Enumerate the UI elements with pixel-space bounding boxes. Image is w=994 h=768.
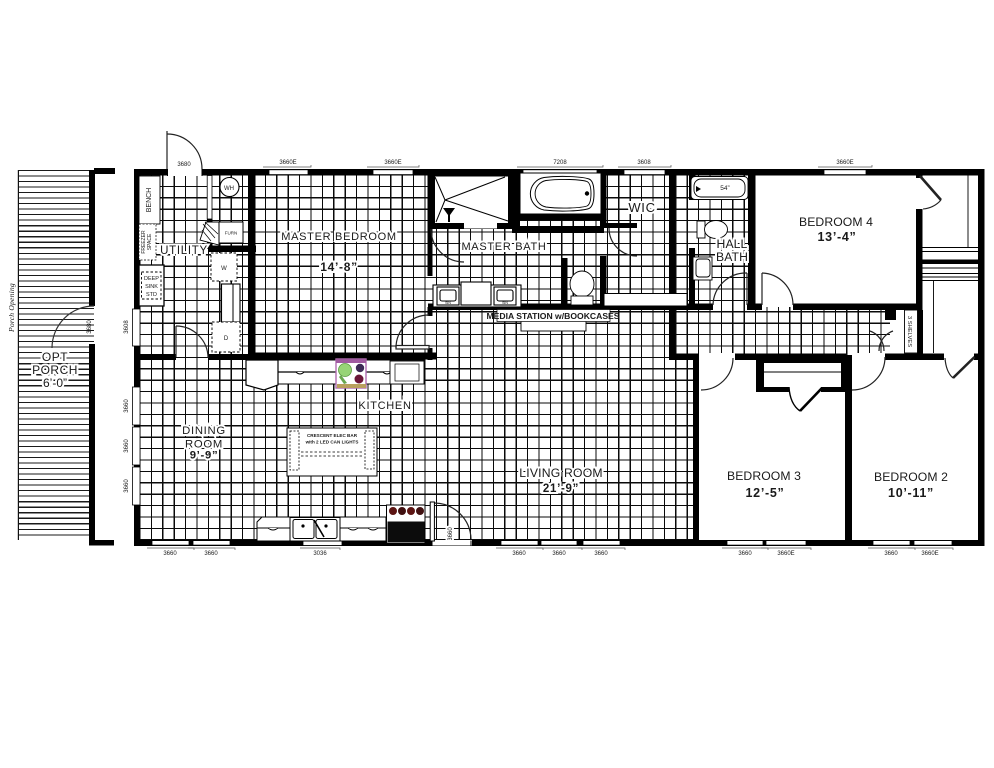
svg-text:3660: 3660 bbox=[124, 479, 130, 493]
svg-text:21’-9”: 21’-9” bbox=[543, 483, 579, 495]
svg-text:BEDROOM 2: BEDROOM 2 bbox=[874, 470, 948, 484]
svg-text:with 2 LED CAN LIGHTS: with 2 LED CAN LIGHTS bbox=[305, 440, 359, 445]
svg-text:3660: 3660 bbox=[594, 551, 608, 557]
svg-text:3660: 3660 bbox=[448, 527, 454, 541]
svg-text:3 SHELVES: 3 SHELVES bbox=[906, 316, 912, 347]
svg-text:SINK: SINK bbox=[145, 284, 158, 290]
svg-text:SPACE: SPACE bbox=[147, 233, 153, 250]
svg-text:3608: 3608 bbox=[124, 320, 130, 334]
svg-text:3680: 3680 bbox=[177, 162, 191, 168]
svg-text:3680: 3680 bbox=[87, 320, 93, 334]
svg-text:MEDIA STATION w/BOOKCASES: MEDIA STATION w/BOOKCASES bbox=[486, 311, 619, 321]
svg-text:BENCH: BENCH bbox=[146, 188, 153, 213]
svg-text:SIN: SIN bbox=[502, 301, 508, 305]
svg-text:W: W bbox=[221, 266, 227, 272]
svg-text:Porch Opening: Porch Opening bbox=[7, 283, 16, 333]
svg-text:3660E: 3660E bbox=[777, 551, 794, 557]
svg-text:3660: 3660 bbox=[204, 551, 218, 557]
svg-text:10’-11”: 10’-11” bbox=[888, 486, 934, 500]
svg-text:KITCHEN: KITCHEN bbox=[358, 400, 411, 412]
svg-text:HALL: HALL bbox=[717, 237, 748, 251]
svg-text:3660: 3660 bbox=[884, 551, 898, 557]
svg-text:FURN: FURN bbox=[225, 231, 238, 236]
svg-text:3660: 3660 bbox=[124, 399, 130, 413]
svg-text:3660E: 3660E bbox=[921, 551, 938, 557]
svg-text:7208: 7208 bbox=[553, 160, 567, 166]
svg-text:LIVING ROOM: LIVING ROOM bbox=[519, 466, 602, 480]
svg-text:UTILITY: UTILITY bbox=[160, 245, 208, 257]
svg-text:3608: 3608 bbox=[637, 160, 651, 166]
svg-text:MASTER BATH: MASTER BATH bbox=[461, 241, 546, 253]
svg-text:SIN: SIN bbox=[445, 301, 451, 305]
svg-text:12’-5”: 12’-5” bbox=[746, 486, 785, 500]
svg-text:3660: 3660 bbox=[552, 551, 566, 557]
svg-text:14’-8”: 14’-8” bbox=[320, 260, 358, 274]
svg-text:BEDROOM 4: BEDROOM 4 bbox=[799, 215, 873, 229]
svg-text:3660E: 3660E bbox=[384, 160, 401, 166]
svg-text:3660E: 3660E bbox=[836, 160, 853, 166]
svg-text:PORCH: PORCH bbox=[32, 363, 78, 377]
svg-text:13’-4”: 13’-4” bbox=[818, 230, 857, 244]
svg-text:9’-9”: 9’-9” bbox=[190, 450, 219, 462]
svg-text:WH: WH bbox=[224, 186, 234, 192]
svg-text:WIC: WIC bbox=[628, 200, 655, 215]
svg-text:3660E: 3660E bbox=[279, 160, 296, 166]
svg-text:D: D bbox=[224, 336, 229, 342]
svg-text:3660: 3660 bbox=[124, 439, 130, 453]
svg-text:6’-0”: 6’-0” bbox=[43, 376, 67, 390]
svg-text:DEEP: DEEP bbox=[144, 276, 159, 282]
svg-text:3660: 3660 bbox=[163, 551, 177, 557]
svg-text:CRESCENT ELEC BAR: CRESCENT ELEC BAR bbox=[307, 433, 358, 438]
svg-text:MASTER BEDROOM: MASTER BEDROOM bbox=[281, 231, 397, 243]
svg-text:54”: 54” bbox=[720, 185, 729, 192]
svg-text:3036: 3036 bbox=[313, 551, 327, 557]
svg-text:OPT: OPT bbox=[42, 350, 68, 364]
svg-text:BATH: BATH bbox=[716, 250, 748, 264]
svg-text:STD: STD bbox=[146, 292, 157, 298]
svg-text:3660: 3660 bbox=[738, 551, 752, 557]
svg-text:3660: 3660 bbox=[512, 551, 526, 557]
svg-text:DINING: DINING bbox=[182, 425, 226, 437]
svg-text:BEDROOM 3: BEDROOM 3 bbox=[727, 469, 801, 483]
